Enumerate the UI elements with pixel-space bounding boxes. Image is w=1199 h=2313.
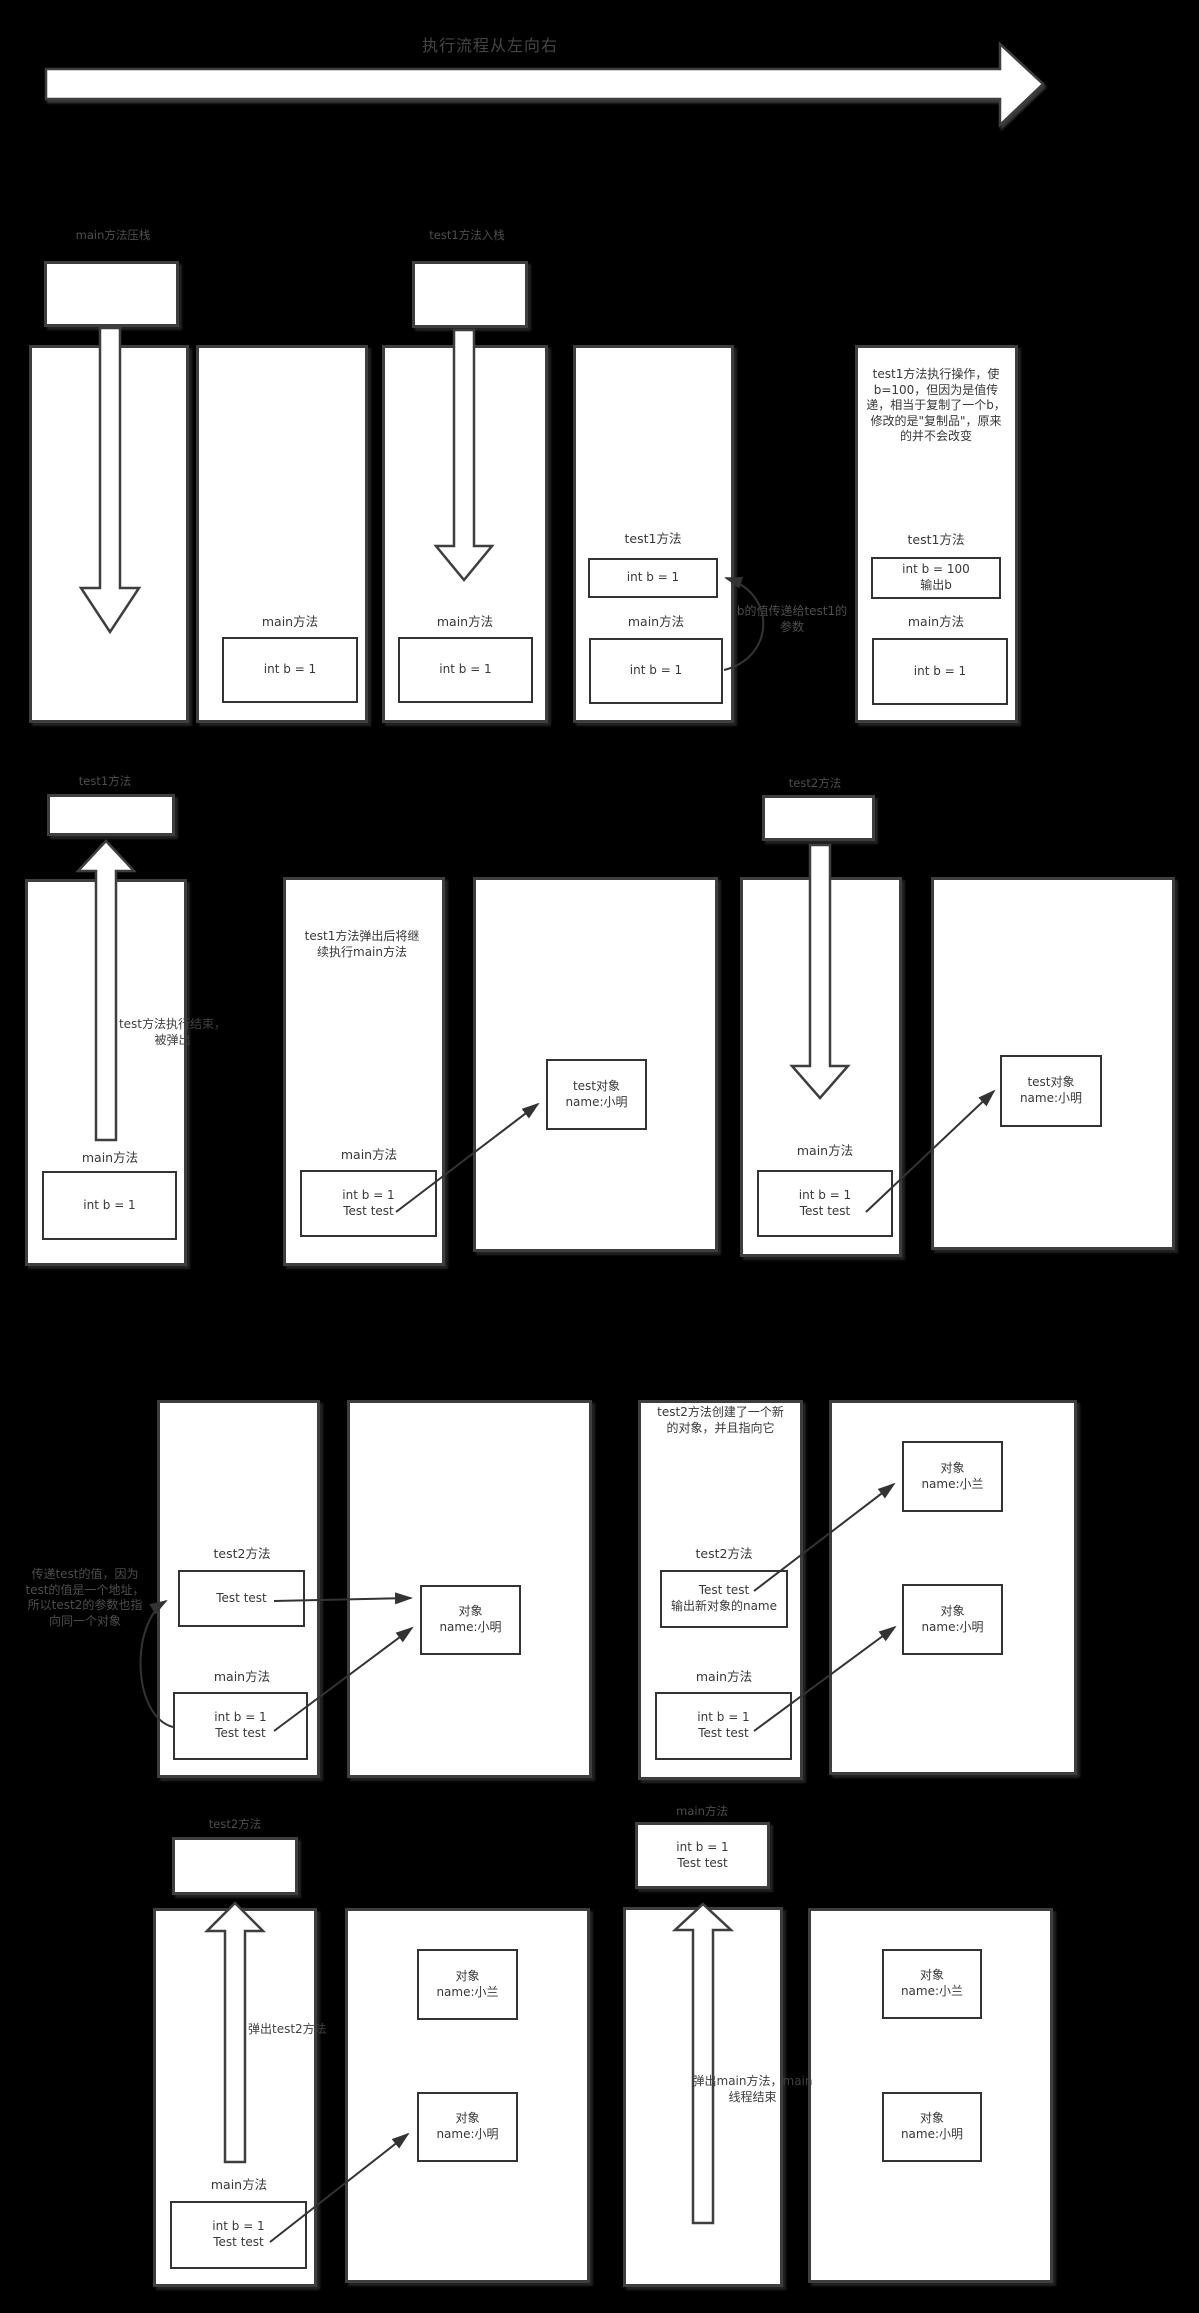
object-box-text: 对象 [455, 1969, 479, 1985]
method-label: main方法 [301, 1144, 437, 1163]
frame-box-text: int b = 1 [212, 2219, 264, 2235]
push-main-label: main方法压栈 [53, 228, 173, 243]
stack-execution-diagram: 执行流程从左向右 main方法压栈 test1方法入栈 main方法 int b… [0, 0, 1199, 2313]
frame-box-text: 输出b [920, 578, 952, 594]
object-box-text: name:小明 [439, 1620, 501, 1636]
frame-box: int b = 1 [398, 637, 533, 703]
frame-box-text: 输出新对象的name [671, 1599, 777, 1615]
object-box-text: test对象 [1027, 1075, 1074, 1091]
pop-note: test方法执行结束，被弹出 [115, 1017, 230, 1048]
test1-frame-token [47, 794, 175, 836]
object-box: 对象 name:小明 [420, 1585, 521, 1655]
frame-box-text: Test test [215, 1726, 266, 1742]
object-box-text: 对象 [455, 2111, 479, 2127]
method-label: test1方法 [868, 529, 1004, 548]
method-label: main方法 [757, 1140, 893, 1159]
test1-frame-token [412, 261, 528, 328]
object-box: 对象 name:小明 [882, 2092, 982, 2162]
frame-box-text: Test test [216, 1591, 267, 1607]
frame-box: int b = 1 [222, 637, 358, 703]
continue-note: test1方法弹出后将继续执行main方法 [301, 929, 423, 960]
object-box: 对象 name:小兰 [882, 1949, 982, 2019]
object-box-text: name:小兰 [921, 1477, 983, 1493]
method-label: main方法 [588, 611, 724, 630]
object-box-text: name:小明 [901, 2127, 963, 2143]
object-box: 对象 name:小兰 [902, 1441, 1003, 1512]
flow-direction-arrow [46, 44, 1043, 125]
method-label: main方法 [656, 1666, 792, 1685]
frame-box-text: int b = 1 [914, 664, 966, 680]
frame-box: int b = 100 输出b [871, 557, 1001, 599]
test2-frame-token [172, 1837, 298, 1895]
method-label: main方法 [171, 2174, 307, 2193]
object-box-text: name:小兰 [436, 1985, 498, 2001]
method-label: main方法 [222, 611, 358, 630]
explain-note: test1方法执行操作，使b=100，但因为是值传递，相当于复制了一个b，修改的… [866, 367, 1006, 445]
object-box: 对象 name:小明 [902, 1584, 1003, 1655]
main-frame-token: int b = 1 Test test [635, 1822, 770, 1889]
object-box-text: 对象 [940, 1461, 964, 1477]
push-test1-label: test1方法入栈 [407, 228, 527, 243]
frame-box-text: int b = 1 [799, 1188, 851, 1204]
frame-box-text: int b = 100 [902, 562, 970, 578]
frame-box: Test test 输出新对象的name [660, 1570, 788, 1628]
frame-box-text: Test test [343, 1204, 394, 1220]
test2-frame-token [762, 795, 875, 841]
frame-box-text: int b = 1 [83, 1198, 135, 1214]
frame-box: int b = 1 [588, 558, 718, 598]
frame-box-text: int b = 1 [627, 570, 679, 586]
frame-box-text: int b = 1 [264, 662, 316, 678]
frame-box: Test test [178, 1570, 305, 1627]
frame-box-text: Test test [800, 1204, 851, 1220]
frame-box: int b = 1 Test test [173, 1692, 308, 1760]
object-box-text: 对象 [920, 2111, 944, 2127]
method-label: main方法 [42, 1147, 178, 1166]
object-box: 对象 name:小明 [417, 2092, 518, 2162]
frame-box-text: Test test [698, 1726, 749, 1742]
frame-box-text: int b = 1 [439, 662, 491, 678]
method-label: test2方法 [656, 1543, 792, 1562]
object-box-text: name:小明 [921, 1620, 983, 1636]
object-box-text: 对象 [458, 1604, 482, 1620]
frame-box-text: int b = 1 [630, 663, 682, 679]
method-label: main方法 [868, 611, 1004, 630]
method-label: test1方法 [585, 528, 721, 547]
pop-test2-note: 弹出test2方法 [248, 2022, 368, 2038]
frame-box-text: Test test [699, 1583, 750, 1599]
frame-box: int b = 1 [42, 1171, 177, 1240]
object-box-text: name:小明 [436, 2127, 498, 2143]
frame-box: int b = 1 Test test [655, 1692, 792, 1760]
object-box-text: name:小兰 [901, 1984, 963, 2000]
frame-box: int b = 1 Test test [170, 2201, 307, 2269]
frame-box: int b = 1 Test test [757, 1170, 893, 1237]
object-box: 对象 name:小兰 [417, 1949, 518, 2020]
frame-box: int b = 1 [872, 638, 1008, 705]
method-label: main方法 [397, 611, 533, 630]
main-frame-token [44, 261, 179, 327]
frame-box: int b = 1 Test test [300, 1170, 437, 1237]
frame-box-text: Test test [213, 2235, 264, 2251]
stack-panel-r1p1 [29, 345, 189, 723]
object-box-text: name:小明 [1020, 1091, 1082, 1107]
frame-box-text: int b = 1 [342, 1188, 394, 1204]
object-box: test对象 name:小明 [1000, 1055, 1102, 1127]
pop-main-note: 弹出main方法，main线程结束 [690, 2074, 815, 2105]
object-box-text: 对象 [920, 1968, 944, 1984]
address-pass-note: 传递test的值，因为test的值是一个地址，所以test2的参数也指向同一个对… [25, 1567, 145, 1629]
object-box-text: test对象 [573, 1079, 620, 1095]
value-pass-note: b的值传递给test1的参数 [734, 604, 850, 635]
method-label: test2方法 [174, 1543, 310, 1562]
frame-box-text: Test test [677, 1856, 728, 1872]
test1-method-label: test1方法 [45, 774, 165, 789]
diagram-title: 执行流程从左向右 [400, 32, 580, 56]
method-label: main方法 [174, 1666, 310, 1685]
test2-method-label: test2方法 [175, 1817, 295, 1832]
frame-box-text: int b = 1 [697, 1710, 749, 1726]
object-box-text: 对象 [940, 1604, 964, 1620]
frame-box: int b = 1 [589, 638, 723, 704]
object-box-text: name:小明 [565, 1095, 627, 1111]
new-object-note: test2方法创建了一个新的对象，并且指向它 [655, 1405, 786, 1436]
object-box: test对象 name:小明 [546, 1059, 647, 1130]
test2-method-label: test2方法 [755, 776, 875, 791]
frame-box-text: int b = 1 [214, 1710, 266, 1726]
frame-box-text: int b = 1 [676, 1840, 728, 1856]
main-method-label: main方法 [642, 1804, 762, 1819]
